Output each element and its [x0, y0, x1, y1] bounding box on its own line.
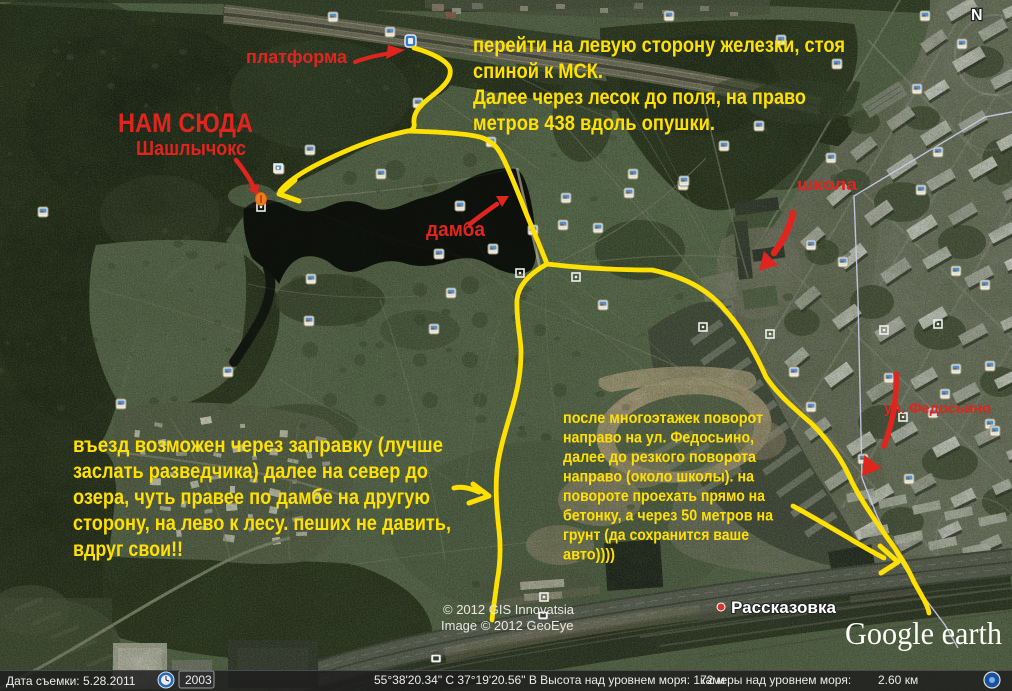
- svg-text:ул. Федосьино: ул. Федосьино: [884, 400, 991, 417]
- svg-text:НАМ СЮДА: НАМ СЮДА: [118, 108, 253, 138]
- svg-text:после многоэтажек поворот: после многоэтажек поворот: [563, 410, 763, 427]
- svg-text:перейти на левую сторону желез: перейти на левую сторону железки, стоя: [473, 34, 845, 57]
- svg-text:Дата съемки: 5.28.2011: Дата съемки: 5.28.2011: [6, 674, 136, 688]
- svg-text:въезд возможен через заправку: въезд возможен через заправку (лучше: [73, 434, 443, 457]
- svg-text:бетонку, а через 50 метров на: бетонку, а через 50 метров на: [563, 508, 773, 525]
- svg-text:© 2012 GIS Innovatsia: © 2012 GIS Innovatsia: [443, 602, 575, 617]
- svg-text:озера, чуть правее по дамбе на: озера, чуть правее по дамбе на другую: [73, 486, 430, 509]
- svg-text:заслать разведчика) далее на с: заслать разведчика) далее на север до: [73, 460, 428, 483]
- svg-text:Шашлычокс: Шашлычокс: [136, 138, 246, 160]
- svg-text:школа: школа: [797, 175, 858, 194]
- svg-text:направо (около школы). на: направо (около школы). на: [563, 469, 754, 486]
- svg-text:Google earth: Google earth: [845, 615, 1002, 651]
- svg-text:55°38'20.34" С 37°19'20.56": 55°38'20.34" С 37°19'20.56" В Высота над…: [374, 673, 725, 687]
- svg-text:повороте проехать прямо на: повороте проехать прямо на: [563, 488, 765, 505]
- svg-text:дамба: дамба: [426, 219, 486, 241]
- svg-text:Далее через лесок до поля, на: Далее через лесок до поля, на право: [473, 86, 806, 109]
- svg-text:вдруг свои!!: вдруг свои!!: [73, 538, 183, 561]
- svg-text:направо на ул. Федосьино,: направо на ул. Федосьино,: [563, 430, 754, 447]
- svg-text:камеры над уровнем моря:: камеры над уровнем моря:: [700, 673, 851, 687]
- svg-text:далее до резкого поворота: далее до резкого поворота: [563, 449, 756, 466]
- svg-text:N: N: [971, 7, 983, 24]
- svg-text:платформа: платформа: [246, 47, 348, 67]
- svg-text:грунт (да сохранится ваше: грунт (да сохранится ваше: [563, 527, 749, 544]
- svg-text:сторону, на лево к лесу. пеших: сторону, на лево к лесу. пеших не давить…: [73, 512, 451, 535]
- svg-text:2.60 км: 2.60 км: [878, 673, 918, 687]
- svg-text:авто)))): авто)))): [563, 547, 615, 564]
- svg-text:2003: 2003: [185, 673, 212, 687]
- svg-text:метров 438 вдоль опушки.: метров 438 вдоль опушки.: [473, 112, 715, 135]
- svg-text:Image © 2012 GeoEye: Image © 2012 GeoEye: [441, 618, 573, 633]
- svg-text:спиной к МСК.: спиной к МСК.: [473, 60, 603, 83]
- svg-text:Рассказовка: Рассказовка: [731, 598, 837, 617]
